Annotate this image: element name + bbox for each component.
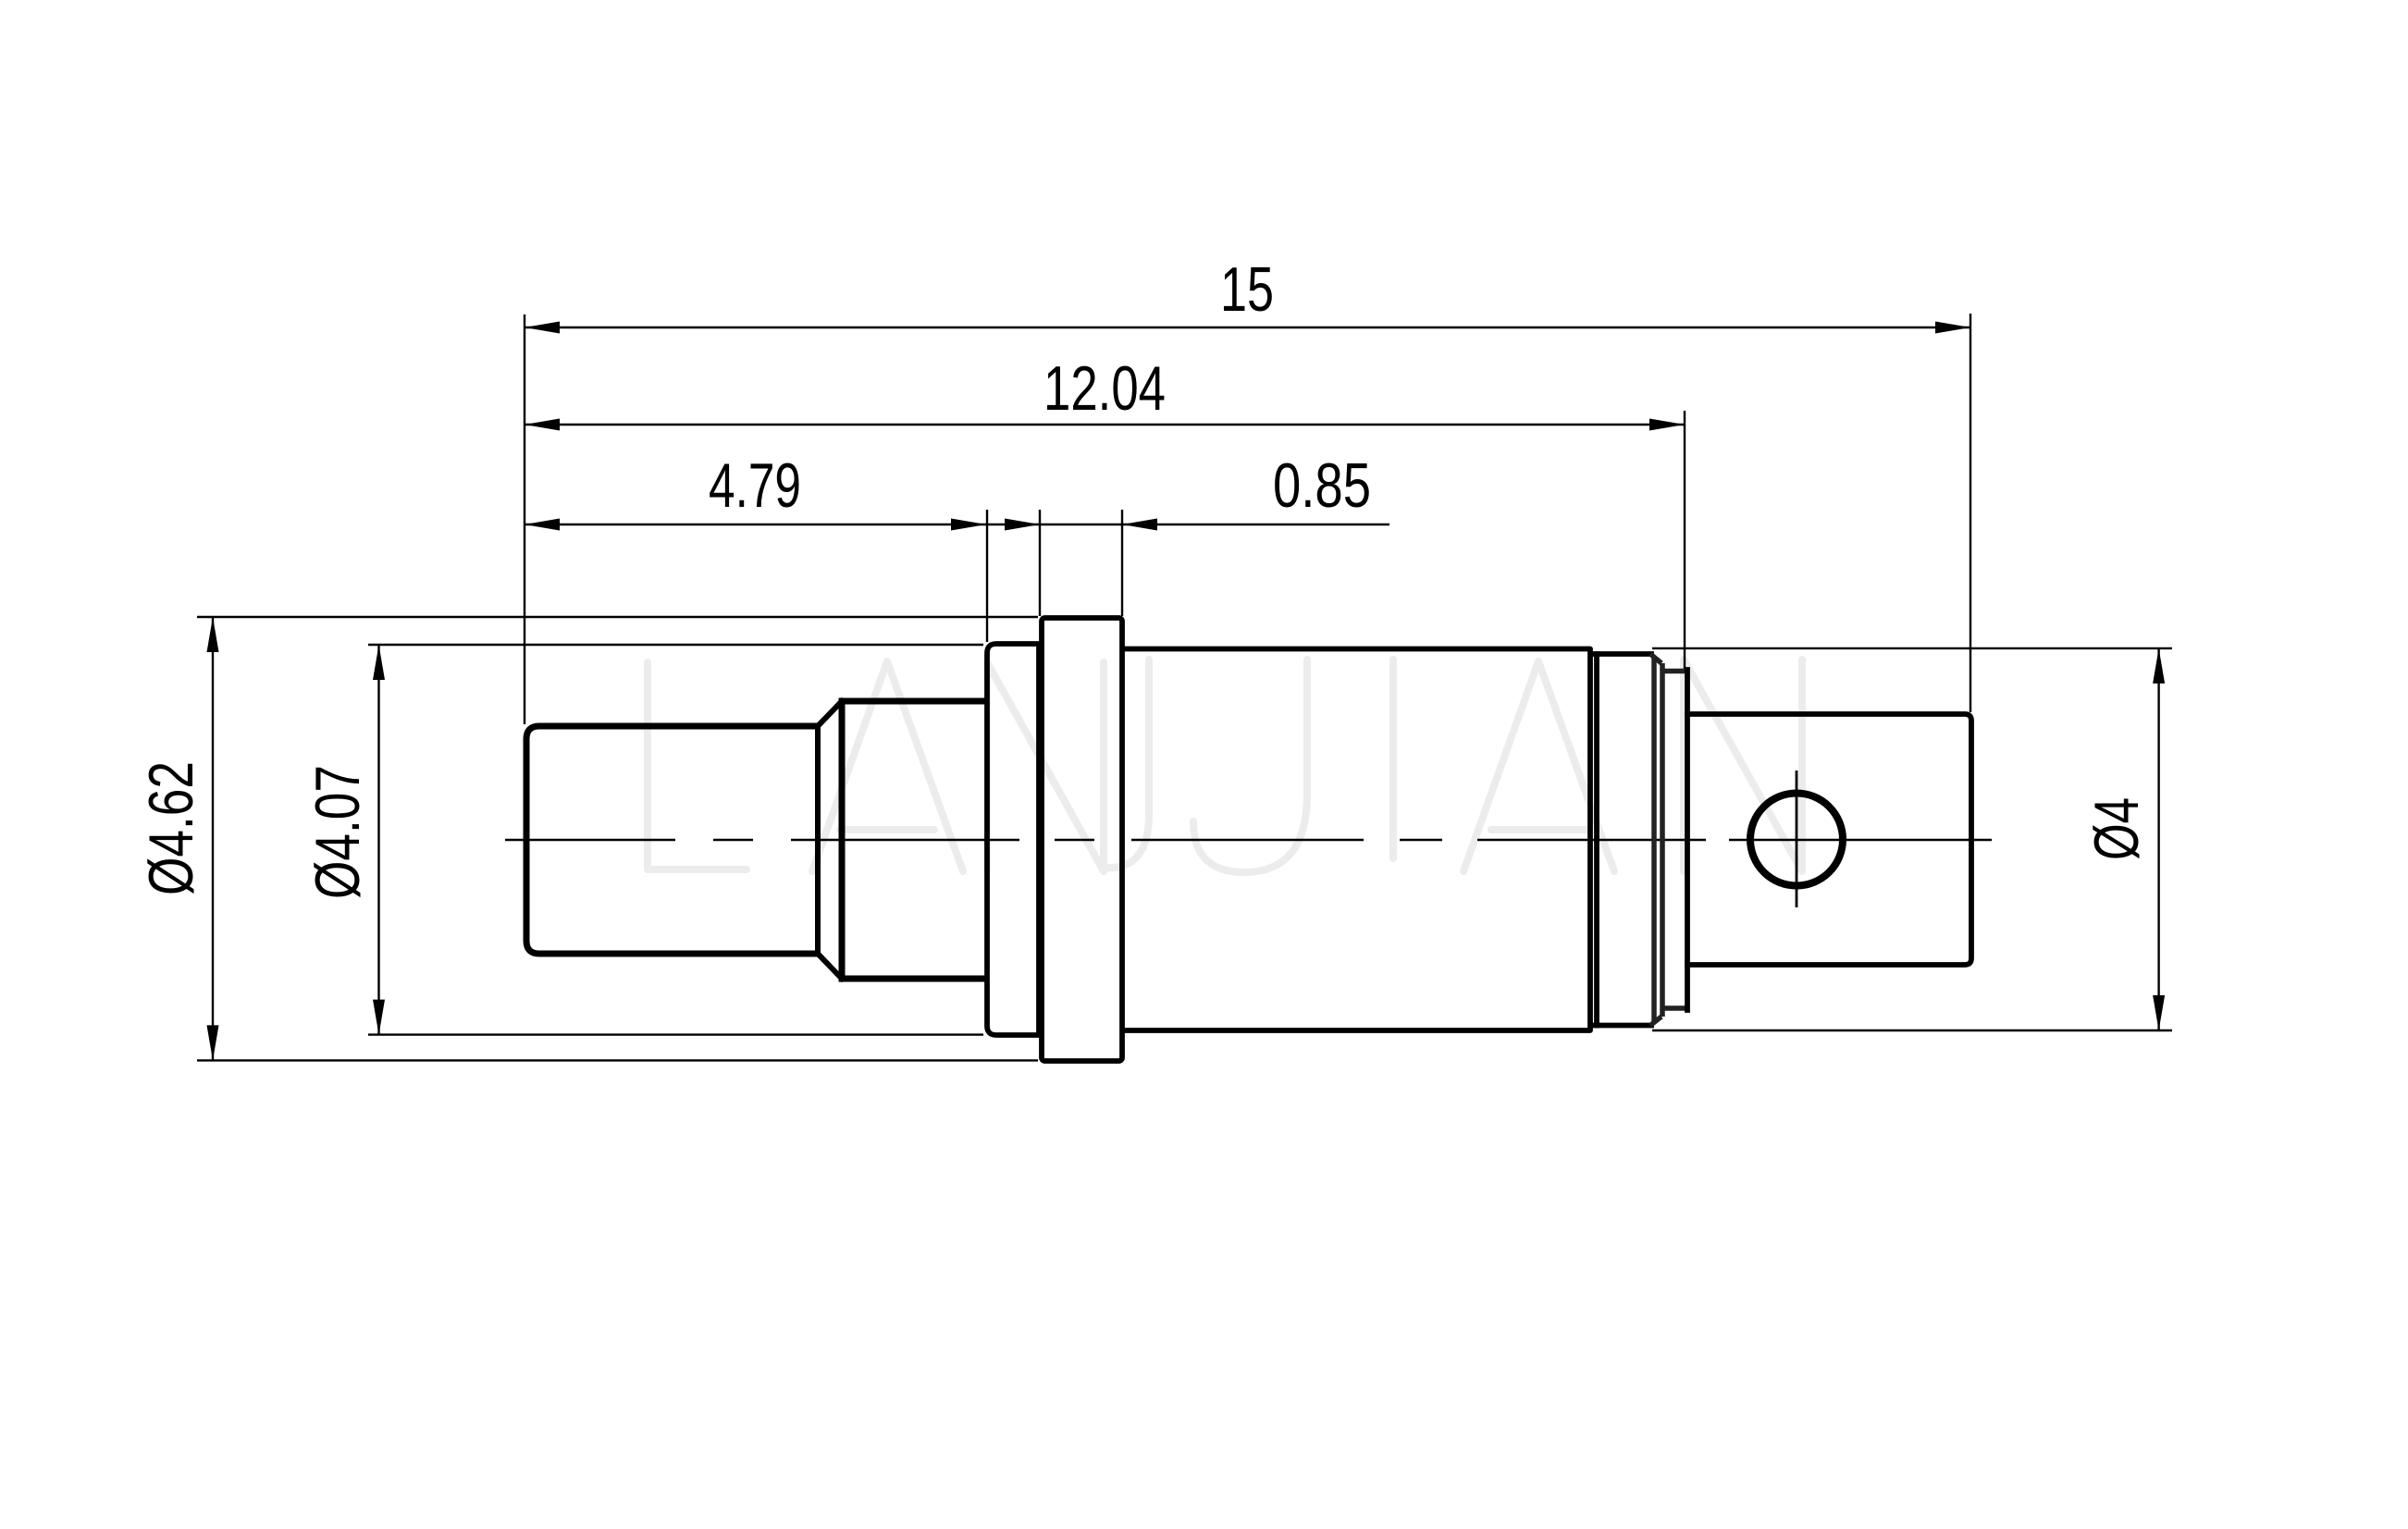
svg-text:Ø4.62: Ø4.62 (136, 761, 206, 895)
svg-text:4.79: 4.79 (709, 450, 801, 521)
svg-text:12.04: 12.04 (1043, 353, 1166, 424)
svg-text:15: 15 (1220, 254, 1274, 325)
svg-text:Ø4.07: Ø4.07 (303, 765, 373, 899)
svg-text:0.85: 0.85 (1273, 450, 1371, 521)
svg-text:Ø4: Ø4 (2081, 797, 2152, 860)
